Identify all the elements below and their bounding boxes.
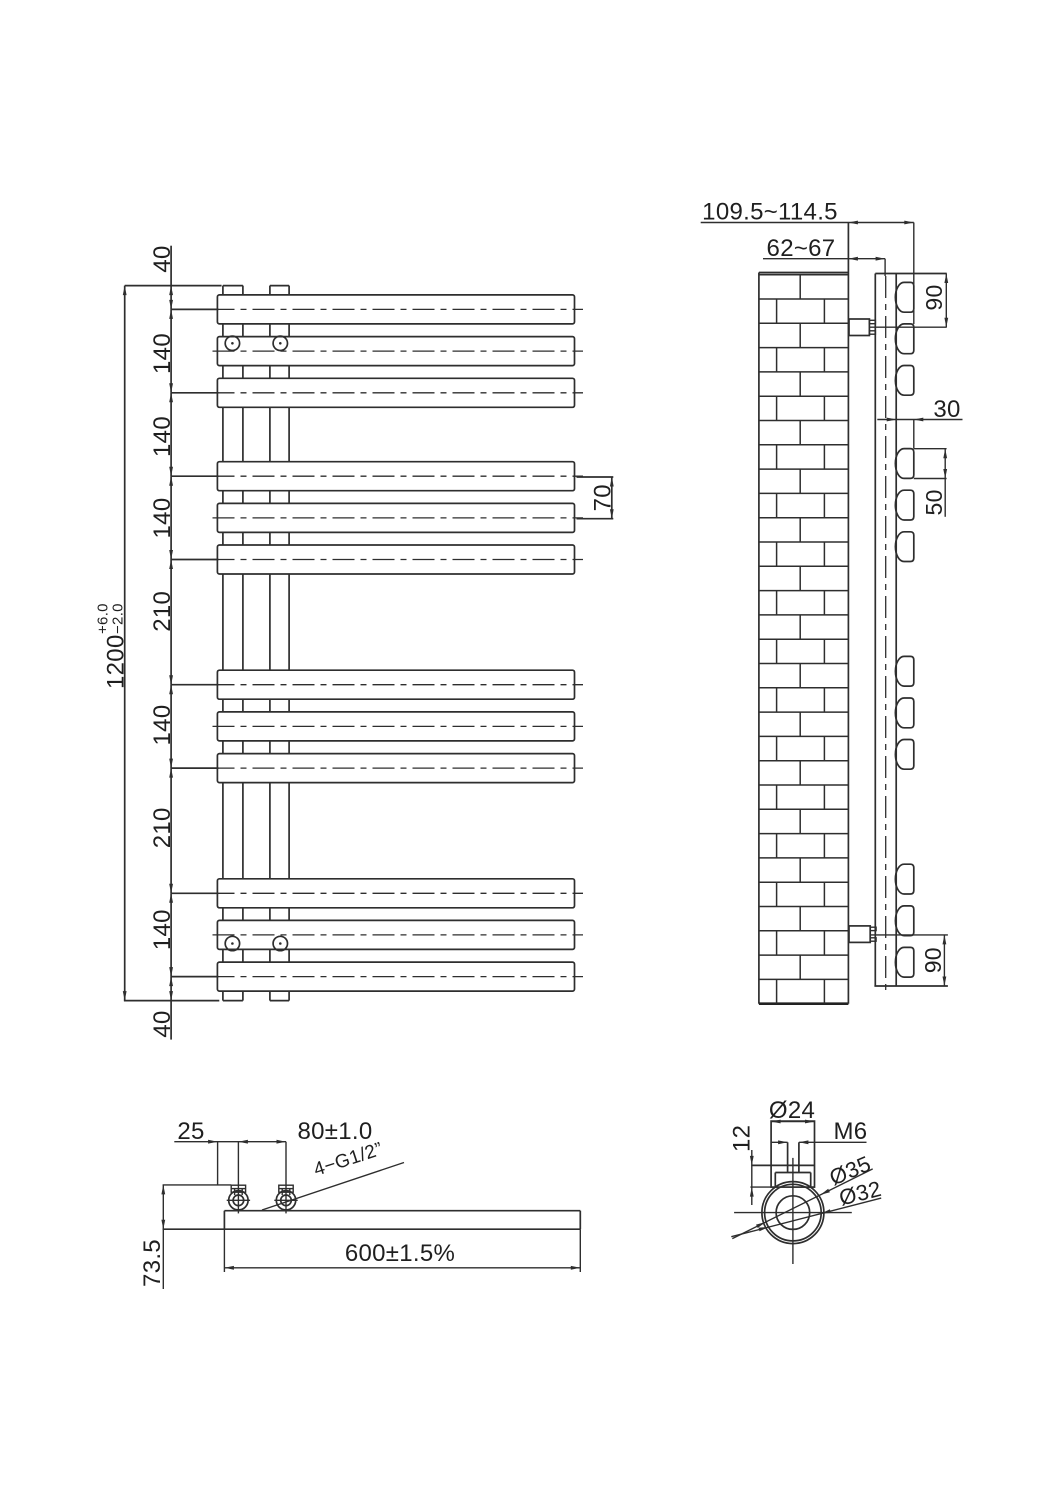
svg-text:1200: 1200 [103,634,130,689]
svg-text:Ø24: Ø24 [769,1097,815,1124]
svg-text:12: 12 [729,1125,756,1152]
svg-text:90: 90 [921,284,947,310]
svg-text:80±1.0: 80±1.0 [297,1118,372,1145]
svg-text:M6: M6 [834,1118,868,1145]
svg-text:4−G1/2”: 4−G1/2” [311,1139,385,1181]
svg-text:140: 140 [149,333,176,374]
svg-text:73.5: 73.5 [139,1239,166,1287]
svg-text:30: 30 [933,396,960,423]
svg-text:70: 70 [590,484,617,511]
svg-text:210: 210 [149,807,176,848]
svg-text:40: 40 [149,245,176,272]
svg-text:25: 25 [177,1118,204,1145]
svg-text:50: 50 [921,489,947,515]
svg-text:140: 140 [149,705,176,746]
svg-text:140: 140 [149,416,176,457]
svg-text:90: 90 [920,947,946,973]
svg-text:140: 140 [149,498,176,539]
svg-text:600±1.5%: 600±1.5% [345,1240,455,1267]
svg-text:210: 210 [149,591,176,632]
svg-text:−2.0: −2.0 [110,603,127,634]
svg-text:62~67: 62~67 [767,235,836,262]
svg-text:140: 140 [149,909,176,950]
svg-text:40: 40 [149,1010,176,1037]
svg-text:109.5~114.5: 109.5~114.5 [702,199,838,226]
